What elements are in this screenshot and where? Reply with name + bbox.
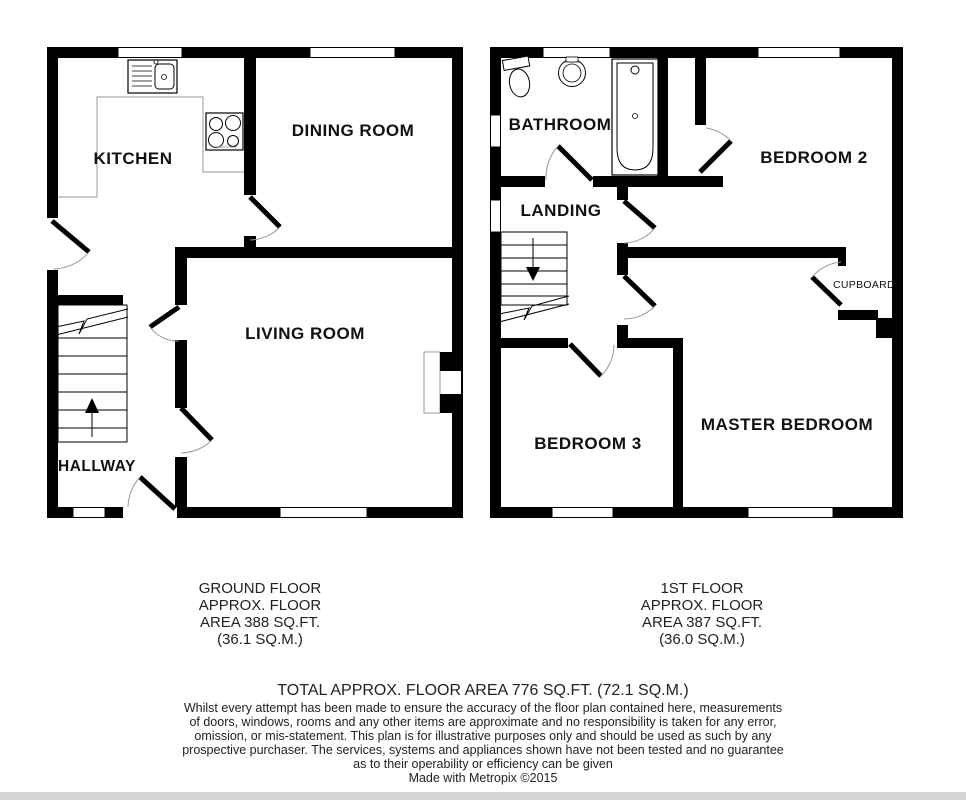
total-floor-area: TOTAL APPROX. FLOOR AREA 776 SQ.FT. (72.… [0, 682, 966, 700]
bedroom2-door [700, 128, 731, 172]
ground-stairs [56, 305, 128, 442]
stairs-down-arrow [526, 267, 540, 281]
master-bedroom-door [624, 276, 655, 319]
front-door [128, 477, 175, 509]
ground-floor-caption: GROUND FLOOR APPROX. FLOOR AREA 388 SQ.F… [95, 580, 425, 648]
ground-caption-line4: (36.1 SQ.M.) [95, 631, 425, 648]
bedroom3-door [570, 344, 614, 376]
hallway-living-door [181, 408, 212, 453]
label-bathroom: BATHROOM [509, 115, 612, 134]
basin [559, 57, 586, 87]
landing-east-door [624, 201, 655, 243]
label-cupboard: CUPBOARD [833, 279, 895, 291]
stairs-up-arrow [85, 398, 99, 413]
label-master-bedroom: MASTER BEDROOM [701, 415, 873, 434]
disclaimer-line1: Whilst every attempt has been made to en… [0, 701, 966, 715]
label-dining-room: DINING ROOM [292, 121, 415, 140]
first-floor-caption: 1ST FLOOR APPROX. FLOOR AREA 387 SQ.FT. … [537, 580, 867, 648]
disclaimer-line4: prospective purchaser. The services, sys… [0, 743, 966, 757]
ground-floor-plan: KITCHEN DINING ROOM LIVING ROOM HALLWAY [47, 47, 463, 518]
first-stairs [499, 232, 569, 322]
disclaimer-line3: omission, or mis-statement. This plan is… [0, 729, 966, 743]
horizontal-scrollbar[interactable] [0, 792, 966, 800]
label-living-room: LIVING ROOM [245, 324, 365, 343]
toilet [502, 56, 534, 99]
disclaimer-line5: as to their operability or efficiency ca… [0, 757, 966, 771]
label-hallway: HALLWAY [58, 458, 136, 475]
label-kitchen: KITCHEN [93, 149, 172, 168]
label-landing: LANDING [521, 201, 602, 220]
kitchen-dining-door [250, 197, 280, 240]
disclaimer-text: Whilst every attempt has been made to en… [0, 701, 966, 771]
disclaimer-line2: of doors, windows, rooms and any other i… [0, 715, 966, 729]
bathtub [612, 59, 658, 175]
label-bedroom2: BEDROOM 2 [760, 148, 867, 167]
ground-caption-line1: GROUND FLOOR [95, 580, 425, 597]
metropix-credit: Made with Metropix ©2015 [0, 771, 966, 785]
floorplan-drawing: KITCHEN DINING ROOM LIVING ROOM HALLWAY [0, 0, 966, 572]
first-caption-line4: (36.0 SQ.M.) [537, 631, 867, 648]
first-caption-line3: AREA 387 SQ.FT. [537, 614, 867, 631]
first-caption-line2: APPROX. FLOOR [537, 597, 867, 614]
floorplan-page: KITCHEN DINING ROOM LIVING ROOM HALLWAY [0, 0, 966, 800]
first-floor-plan: BATHROOM LANDING BEDROOM 2 CUPBOARD BEDR… [490, 47, 903, 518]
bathroom-door [546, 146, 592, 180]
hallway-kitchen-door [150, 307, 179, 341]
label-bedroom3: BEDROOM 3 [534, 434, 641, 453]
ground-caption-line3: AREA 388 SQ.FT. [95, 614, 425, 631]
kitchen-hob [206, 113, 243, 150]
first-caption-line1: 1ST FLOOR [537, 580, 867, 597]
ground-caption-line2: APPROX. FLOOR [95, 597, 425, 614]
kitchen-sink [128, 60, 177, 93]
